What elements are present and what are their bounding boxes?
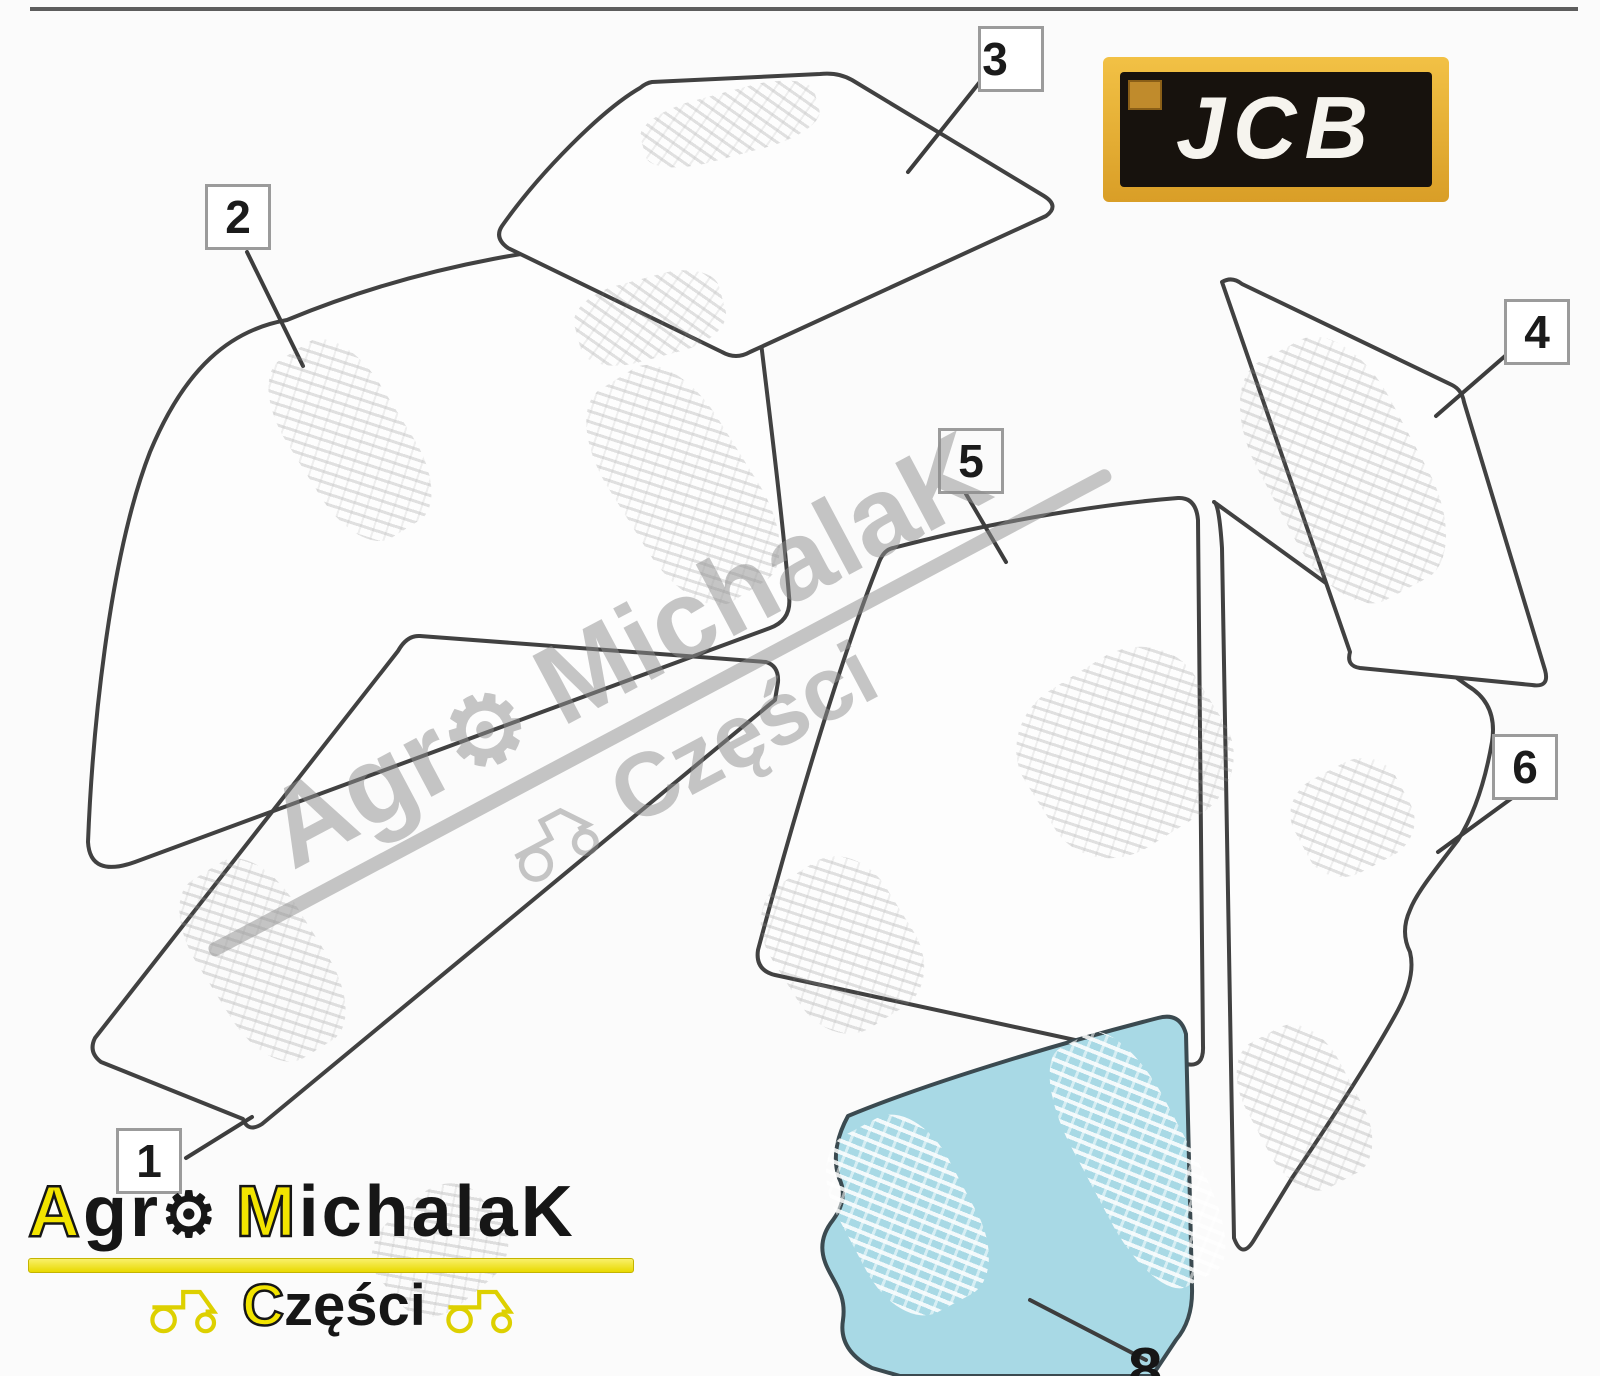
dealer-logo-word2: ichala (299, 1172, 521, 1252)
callout-label-2: 2 (225, 194, 251, 240)
dealer-logo-initial-m: M (236, 1172, 299, 1252)
jcb-logo-notch (1128, 80, 1162, 110)
callout-label-4: 4 (1524, 309, 1550, 355)
tractor-icon (144, 1278, 228, 1334)
dealer-logo-word2-suffix: K (521, 1172, 576, 1252)
callout-box-5: 5 (938, 428, 1004, 494)
parts-diagram-page: 1 2 3 4 5 6 8 JCB Agr⚙MichalaK (0, 0, 1600, 1376)
dealer-logo-subtitle-initial: C (242, 1273, 284, 1338)
callout-label-6: 6 (1512, 744, 1538, 790)
jcb-logo-text: JCB (1176, 84, 1376, 172)
dealer-logo-title: Agr⚙MichalaK (28, 1176, 640, 1248)
dealer-logo-subtitle: Części (242, 1277, 426, 1335)
jcb-logo-panel: JCB (1120, 72, 1432, 187)
dealer-logo-bar (28, 1258, 634, 1273)
callout-label-5: 5 (958, 438, 984, 484)
callout-box-3: 3 (978, 26, 1044, 92)
dealer-logo: Agr⚙MichalaK Części (28, 1176, 640, 1335)
jcb-logo: JCB (1103, 57, 1449, 202)
gear-icon: ⚙ (161, 1181, 220, 1250)
dealer-logo-word1: gr (83, 1172, 161, 1252)
leader-line-1 (186, 1117, 252, 1158)
dealer-logo-initial-a: A (28, 1172, 83, 1252)
dealer-logo-subtitle-row: Części (28, 1277, 640, 1335)
callout-box-2: 2 (205, 184, 271, 250)
dealer-logo-subtitle-rest: zęści (284, 1273, 426, 1338)
callout-box-6: 6 (1492, 734, 1558, 800)
callout-label-partial: 8 (1128, 1340, 1162, 1376)
callout-label-3: 3 (982, 36, 1008, 82)
tractor-icon (440, 1278, 524, 1334)
callout-box-4: 4 (1504, 299, 1570, 365)
